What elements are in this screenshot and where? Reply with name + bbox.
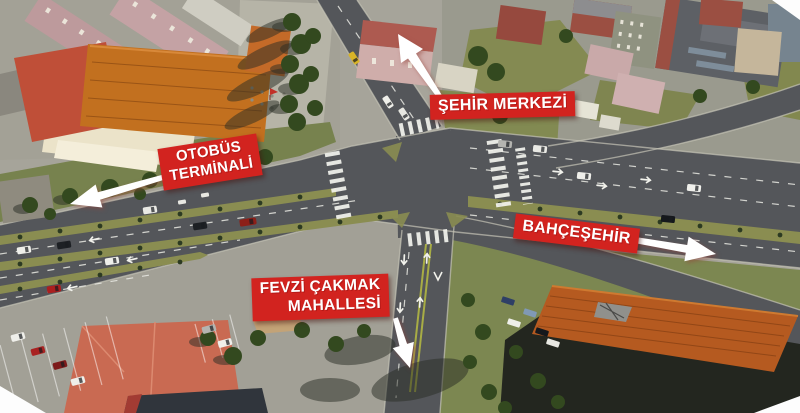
arrow-bus-terminal-icon (70, 173, 172, 208)
tree (307, 100, 323, 116)
building-brick-small (496, 5, 546, 45)
tree (551, 395, 565, 409)
tree (303, 66, 319, 82)
tree (693, 89, 707, 103)
car (577, 172, 592, 180)
tree (559, 29, 573, 43)
tree (746, 80, 760, 94)
arrow-fevzi-cakmak-icon (393, 317, 414, 368)
car (498, 140, 513, 148)
traffic-intersection-render: ŞEHİR MERKEZİ OTOBÜS TERMİNALİ BAHÇEŞEHİ… (0, 0, 800, 413)
arrow-city-center-icon (398, 34, 444, 101)
tree (461, 293, 475, 307)
tree (509, 345, 523, 359)
tree (305, 28, 321, 44)
tree (530, 373, 546, 389)
tree (487, 63, 505, 81)
tree (294, 322, 310, 338)
car (533, 145, 548, 153)
car (661, 215, 676, 223)
tree (475, 324, 491, 340)
tree (44, 208, 56, 220)
tree (463, 355, 477, 369)
tree (468, 46, 488, 66)
car (687, 184, 702, 192)
arrow-fevzi-cakmak (368, 312, 428, 372)
label-city-center-text: ŞEHİR MERKEZİ (438, 93, 568, 116)
tree (481, 384, 497, 400)
label-fevzi-cakmak: FEVZİ ÇAKMAK MAHALLESİ (251, 274, 389, 322)
tree (288, 113, 306, 131)
tree (250, 330, 266, 346)
tree (328, 336, 344, 352)
label-city-center: ŞEHİR MERKEZİ (430, 91, 576, 119)
